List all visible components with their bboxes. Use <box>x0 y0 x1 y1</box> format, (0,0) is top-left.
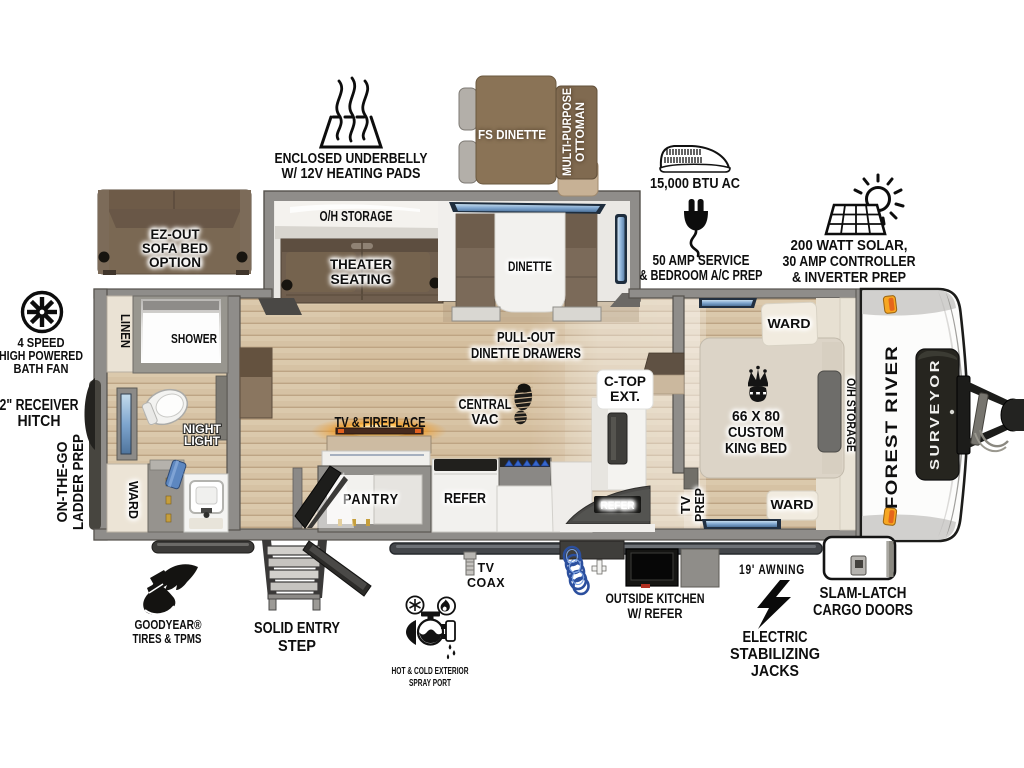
svg-text:SHOWER: SHOWER <box>171 331 217 346</box>
svg-text:BATH FAN: BATH FAN <box>14 362 69 376</box>
svg-text:PREP: PREP <box>693 488 707 522</box>
svg-text:CUSTOM: CUSTOM <box>728 425 784 441</box>
svg-text:COAX: COAX <box>467 575 505 590</box>
svg-text:LINEN: LINEN <box>118 314 132 348</box>
svg-text:LADDER PREP: LADDER PREP <box>71 434 87 530</box>
svg-text:WARD: WARD <box>768 316 811 331</box>
svg-text:W/ REFER: W/ REFER <box>628 606 683 621</box>
svg-text:FS DINETTE: FS DINETTE <box>478 127 546 142</box>
svg-text:THEATER: THEATER <box>330 256 392 272</box>
svg-text:STABILIZING: STABILIZING <box>730 646 820 663</box>
svg-text:STEP: STEP <box>278 638 316 655</box>
svg-text:NIGHT: NIGHT <box>183 424 221 436</box>
svg-text:TV: TV <box>478 560 495 575</box>
svg-text:OUTSIDE KITCHEN: OUTSIDE KITCHEN <box>606 591 705 606</box>
svg-text:200 WATT SOLAR,: 200 WATT SOLAR, <box>791 238 908 254</box>
svg-text:REFER: REFER <box>601 500 635 512</box>
svg-text:LIGHT: LIGHT <box>184 436 220 448</box>
svg-text:W/ 12V HEATING PADS: W/ 12V HEATING PADS <box>282 166 421 182</box>
svg-text:JACKS: JACKS <box>751 663 799 680</box>
svg-text:ENCLOSED UNDERBELLY: ENCLOSED UNDERBELLY <box>275 151 428 167</box>
svg-text:EXT.: EXT. <box>610 389 640 404</box>
svg-text:HITCH: HITCH <box>18 413 61 430</box>
svg-text:PULL-OUT: PULL-OUT <box>497 329 555 346</box>
svg-text:66 X 80: 66 X 80 <box>732 409 780 425</box>
svg-text:ON-THE-GO: ON-THE-GO <box>55 442 71 523</box>
svg-text:PANTRY: PANTRY <box>343 492 399 508</box>
svg-text:TV & FIREPLACE: TV & FIREPLACE <box>335 414 426 431</box>
svg-text:TV: TV <box>679 495 693 514</box>
svg-text:HIGH POWERED: HIGH POWERED <box>0 349 83 363</box>
svg-text:KING BED: KING BED <box>725 441 787 457</box>
svg-text:MULTI-PURPOSE: MULTI-PURPOSE <box>562 88 574 176</box>
svg-text:OPTION: OPTION <box>149 255 201 270</box>
svg-text:ELECTRIC: ELECTRIC <box>743 629 808 646</box>
svg-text:HOT & COLD EXTERIOR: HOT & COLD EXTERIOR <box>392 666 470 677</box>
svg-text:CARGO DOORS: CARGO DOORS <box>813 602 913 619</box>
svg-text:50 AMP SERVICE: 50 AMP SERVICE <box>653 253 750 269</box>
svg-text:SLAM-LATCH: SLAM-LATCH <box>820 585 907 602</box>
svg-text:30 AMP CONTROLLER: 30 AMP CONTROLLER <box>783 254 916 270</box>
svg-text:15,000 BTU AC: 15,000 BTU AC <box>650 176 740 192</box>
svg-text:& BEDROOM A/C PREP: & BEDROOM A/C PREP <box>640 268 763 284</box>
svg-text:WARD: WARD <box>126 481 140 519</box>
svg-text:VAC: VAC <box>472 411 499 428</box>
svg-text:SURVEYOR: SURVEYOR <box>927 358 942 470</box>
svg-text:WARD: WARD <box>771 497 814 512</box>
svg-text:2" RECEIVER: 2" RECEIVER <box>0 397 79 414</box>
svg-text:TIRES & TPMS: TIRES & TPMS <box>133 632 202 646</box>
svg-text:& INVERTER PREP: & INVERTER PREP <box>792 270 906 286</box>
svg-text:DINETTE DRAWERS: DINETTE DRAWERS <box>471 345 581 362</box>
svg-text:EZ-OUT: EZ-OUT <box>151 227 201 242</box>
svg-text:FOREST RIVER: FOREST RIVER <box>882 345 901 509</box>
svg-text:O/H STORAGE: O/H STORAGE <box>320 209 393 225</box>
svg-text:C-TOP: C-TOP <box>604 374 646 389</box>
svg-text:SPRAY PORT: SPRAY PORT <box>409 678 451 689</box>
svg-text:OTTOMAN: OTTOMAN <box>575 102 587 162</box>
svg-text:SOFA BED: SOFA BED <box>142 241 208 256</box>
svg-text:GOODYEAR®: GOODYEAR® <box>135 618 203 632</box>
svg-text:SEATING: SEATING <box>331 271 392 287</box>
svg-text:SOLID ENTRY: SOLID ENTRY <box>254 620 340 637</box>
svg-text:4 SPEED: 4 SPEED <box>18 336 65 350</box>
svg-text:19' AWNING: 19' AWNING <box>739 562 805 577</box>
svg-text:DINETTE: DINETTE <box>508 258 552 274</box>
svg-text:REFER: REFER <box>444 491 486 507</box>
